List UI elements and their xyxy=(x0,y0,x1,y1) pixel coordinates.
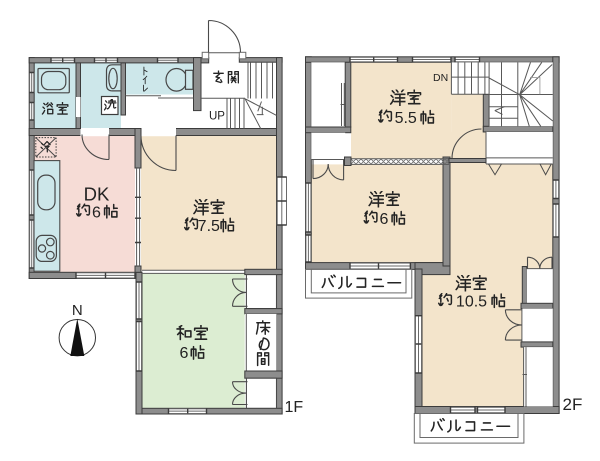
svg-text:6: 6 xyxy=(380,211,389,228)
svg-text:10.5: 10.5 xyxy=(456,294,487,311)
svg-text:6: 6 xyxy=(92,205,101,222)
svg-text:5.5: 5.5 xyxy=(395,110,417,127)
svg-text:DN: DN xyxy=(433,72,448,84)
svg-text:7.5: 7.5 xyxy=(198,218,220,235)
svg-text:UP: UP xyxy=(209,111,225,123)
svg-text:DK: DK xyxy=(84,184,110,205)
svg-text:N: N xyxy=(72,302,83,319)
svg-text:6: 6 xyxy=(180,345,189,362)
svg-text:1F: 1F xyxy=(285,399,304,416)
svg-text:2F: 2F xyxy=(563,395,583,414)
